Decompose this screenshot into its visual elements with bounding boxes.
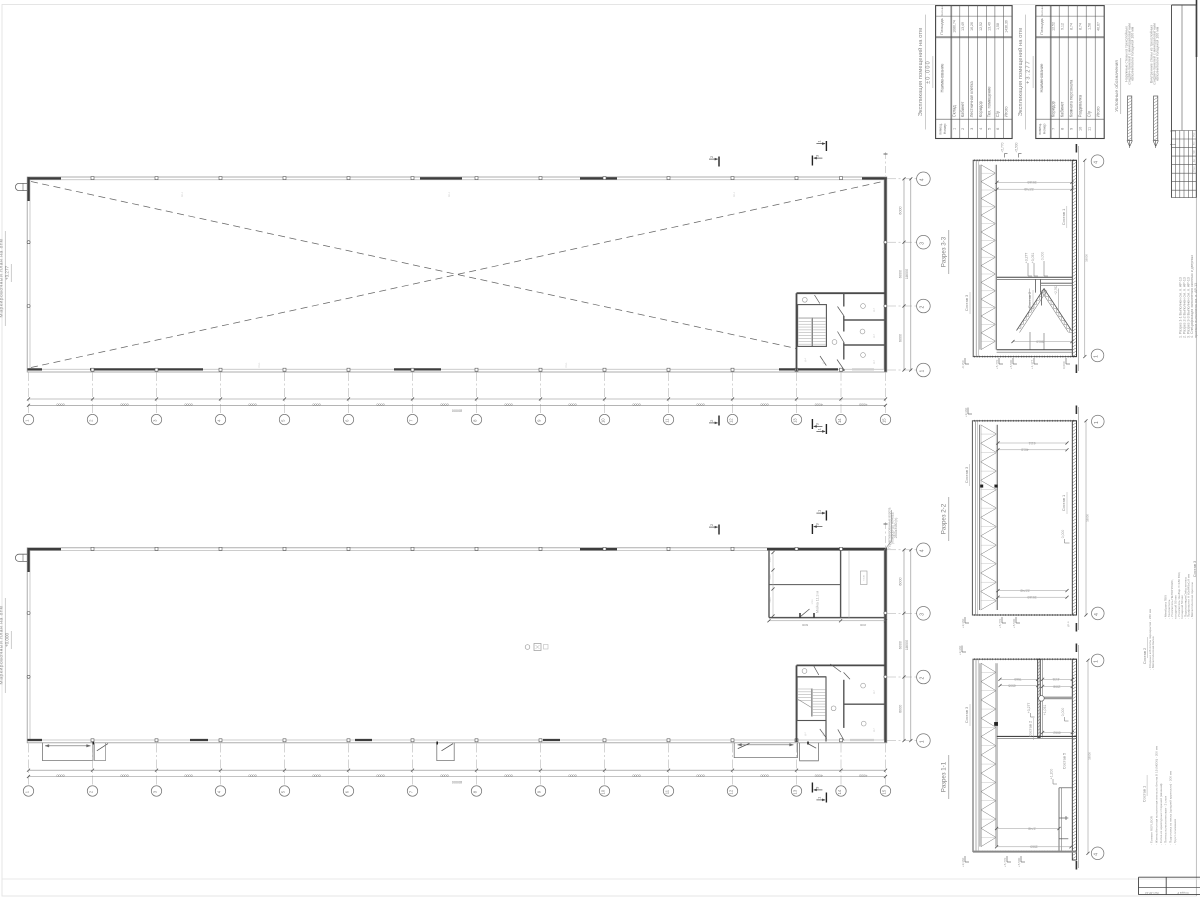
- svg-text:18000: 18000: [1088, 752, 1092, 760]
- svg-text:6062: 6062: [1053, 730, 1061, 734]
- svg-text:Подп: Подп: [1194, 167, 1196, 172]
- svg-text:+5,500: +5,500: [1017, 857, 1021, 867]
- svg-text:6000: 6000: [440, 774, 448, 778]
- svg-text:помещ.: помещ.: [938, 123, 942, 135]
- svg-text:+9,360: +9,360: [961, 618, 965, 628]
- svg-text:6000: 6000: [120, 774, 128, 778]
- svg-text:18000: 18000: [1086, 514, 1090, 522]
- svg-text:Разрез 2-2: Разрез 2-2: [941, 503, 948, 534]
- svg-text:Состав 3: Состав 3: [964, 706, 969, 723]
- svg-text:+9,360: +9,360: [958, 645, 962, 655]
- svg-text:+5,500: +5,500: [1015, 142, 1019, 152]
- svg-text:Стадия Р: Стадия Р: [1177, 891, 1189, 895]
- svg-text:35169: 35169: [1027, 595, 1036, 599]
- svg-text:6000: 6000: [312, 774, 320, 778]
- svg-text:- Металлическая балка: - Металлическая балка: [1151, 636, 1155, 670]
- svg-text:4: 4: [919, 178, 925, 181]
- svg-text:6000: 6000: [898, 206, 902, 214]
- svg-text:Площадь: Площадь: [940, 18, 944, 35]
- svg-text:12: 12: [729, 789, 734, 794]
- svg-text:+1,200: +1,200: [1049, 769, 1053, 780]
- svg-text:0,000: 0,000: [1061, 708, 1065, 717]
- svg-text:14: 14: [837, 418, 842, 423]
- svg-text:13: 13: [793, 789, 798, 794]
- svg-text:11: 11: [1088, 127, 1092, 131]
- svg-text:6000: 6000: [568, 402, 576, 406]
- svg-text:помещ.: помещ.: [1038, 123, 1042, 135]
- svg-text:+1,177: +1,177: [1030, 359, 1034, 369]
- svg-text:6000: 6000: [120, 402, 128, 406]
- svg-text:4: 4: [919, 549, 925, 552]
- svg-text:Состав 2: Состав 2: [1028, 720, 1033, 737]
- svg-text:6000: 6000: [184, 774, 192, 778]
- svg-text:Кабинет: Кабинет: [1060, 102, 1065, 118]
- svg-text:4618: 4618: [1021, 448, 1029, 452]
- svg-text:18000: 18000: [905, 640, 909, 650]
- svg-text:35169: 35169: [1027, 180, 1036, 184]
- svg-text:Тех. помещение: Тех. помещение: [987, 86, 992, 118]
- svg-text:Состав 1: Состав 1: [1061, 208, 1066, 225]
- svg-text:2500х3480 (h): 2500х3480 (h): [894, 518, 898, 539]
- svg-text:1: 1: [1094, 355, 1100, 358]
- svg-text:Разрез 3-3: Разрез 3-3: [941, 236, 948, 267]
- svg-text:80000: 80000: [452, 780, 462, 784]
- svg-text:2: 2: [961, 128, 965, 130]
- svg-text:С/у: С/у: [995, 110, 1000, 117]
- svg-text:4: 4: [1094, 613, 1100, 616]
- svg-text:1: 1: [1094, 421, 1100, 424]
- svg-text:12: 12: [729, 418, 734, 423]
- svg-text:6000: 6000: [376, 774, 384, 778]
- svg-text:6000: 6000: [312, 402, 320, 406]
- svg-text:13: 13: [793, 418, 798, 423]
- svg-text:6000: 6000: [898, 641, 902, 649]
- svg-text:- Пленка полиэтиленовая - 2 с: - Пленка полиэтиленовая - 2 слоя: [1164, 796, 1168, 845]
- svg-text:наполнителем толщиной 100 мм: наполнителем толщиной 100 мм: [1156, 26, 1160, 81]
- svg-text:-0,150: -0,150: [961, 360, 965, 369]
- svg-text:Лестничная клетка: Лестничная клетка: [969, 81, 974, 118]
- svg-text:6000: 6000: [760, 402, 768, 406]
- svg-text:1436,39: 1436,39: [1005, 20, 1009, 33]
- svg-text:2: 2: [919, 676, 925, 679]
- svg-text:16,26: 16,26: [970, 22, 974, 31]
- svg-text:1: 1: [919, 740, 925, 743]
- svg-text:4000: 4000: [859, 402, 867, 406]
- svg-text:9610: 9610: [1036, 339, 1044, 343]
- svg-text:Сп-1: Сп-1: [258, 362, 261, 368]
- svg-text:Состав 2: Состав 2: [1142, 647, 1147, 664]
- svg-text:- Грунт основания: - Грунт основания: [1173, 819, 1177, 845]
- svg-text:13,49: 13,49: [988, 22, 992, 31]
- svg-text:3: 3: [919, 613, 925, 616]
- svg-text:Состав 1: Состав 1: [1141, 785, 1146, 802]
- svg-text:6000: 6000: [898, 705, 902, 713]
- svg-text:Кол-во: Кол-во: [1040, 6, 1044, 16]
- svg-text:- Сетка из арматурных стержней: - Сетка из арматурных стержней (вязаная): [1159, 784, 1163, 845]
- svg-text:10: 10: [1079, 127, 1083, 131]
- svg-text:6000: 6000: [56, 402, 64, 406]
- svg-text:+3.277: +3.277: [1026, 60, 1032, 84]
- svg-text:±0.000: ±0.000: [926, 60, 932, 84]
- svg-text:6000: 6000: [898, 577, 902, 585]
- svg-text:6000: 6000: [504, 774, 512, 778]
- svg-text:Итого: Итого: [1004, 106, 1009, 117]
- svg-text:6000: 6000: [696, 774, 704, 778]
- svg-text:0,000: 0,000: [1061, 530, 1065, 539]
- svg-text:- Металлические прогоны: - Металлические прогоны: [1190, 581, 1194, 619]
- svg-text:5: 5: [988, 128, 992, 130]
- svg-text:6595: 6595: [1008, 684, 1016, 688]
- svg-text:Экспликация помещений на отм: Экспликация помещений на отм: [1017, 28, 1024, 116]
- svg-text:15: 15: [882, 418, 887, 423]
- svg-text:1,58: 1,58: [1088, 23, 1092, 30]
- svg-text:Лист АР-12: Лист АР-12: [1145, 891, 1159, 895]
- svg-text:1: 1: [919, 369, 925, 372]
- svg-text:Состав 3: Состав 3: [964, 294, 969, 311]
- svg-text:+5,770: +5,770: [1003, 857, 1007, 867]
- svg-text:6000: 6000: [248, 402, 256, 406]
- svg-text:Экспликация помещений на отм: Экспликация помещений на отм: [917, 28, 924, 116]
- svg-text:Итого: Итого: [1096, 106, 1101, 117]
- svg-text:+9,360: +9,360: [964, 407, 968, 417]
- svg-text:Наименование: Наименование: [939, 63, 944, 93]
- svg-text:Кол-во: Кол-во: [940, 6, 944, 16]
- svg-text:+0.000: +0.000: [5, 632, 10, 647]
- svg-text:10: 10: [601, 789, 606, 794]
- svg-text:+3,277: +3,277: [1025, 253, 1029, 264]
- svg-text:Номер: Номер: [943, 124, 947, 135]
- svg-text:3569: 3569: [1030, 845, 1038, 849]
- svg-text:12,52: 12,52: [979, 22, 983, 31]
- svg-text:18000: 18000: [1084, 254, 1088, 262]
- svg-text:1: 1: [952, 128, 956, 130]
- svg-text:- Железобетонная монолитная пл: - Железобетонная монолитная плита из бет…: [1154, 746, 1158, 845]
- svg-text:Склад: Склад: [951, 105, 956, 117]
- svg-text:40,67: 40,67: [1097, 22, 1101, 31]
- svg-text:1750: 1750: [770, 557, 772, 563]
- svg-text:Состав 1: Состав 1: [1061, 494, 1066, 511]
- svg-text:6000: 6000: [760, 774, 768, 778]
- svg-text:6000: 6000: [376, 402, 384, 406]
- svg-text:- Подготовка из песка (средней: - Подготовка из песка (средней крупности…: [1168, 771, 1172, 845]
- svg-text:Сп-1: Сп-1: [448, 191, 451, 197]
- svg-text:4131: 4131: [1052, 677, 1060, 681]
- svg-text:22748: 22748: [1020, 589, 1029, 593]
- svg-text:+9,360: +9,360: [961, 857, 965, 867]
- svg-text:2850: 2850: [770, 597, 772, 603]
- svg-text:Мойка 11,3 м: Мойка 11,3 м: [816, 591, 820, 613]
- svg-text:Сп-1: Сп-1: [565, 362, 568, 368]
- svg-text:4: 4: [1094, 161, 1100, 164]
- svg-text:+1,051: +1,051: [1043, 705, 1047, 716]
- svg-text:2748: 2748: [1028, 826, 1036, 830]
- svg-text:ур.з.: ур.з.: [1066, 621, 1070, 627]
- svg-text:+5,770: +5,770: [995, 359, 999, 369]
- svg-text:Сп-1: Сп-1: [181, 191, 184, 197]
- svg-text:1080,74: 1080,74: [952, 20, 956, 33]
- svg-text:15: 15: [882, 789, 887, 794]
- svg-text:наполнителем толщиной 100 мм: наполнителем толщиной 100 мм: [1131, 26, 1135, 81]
- svg-text:8,74: 8,74: [1079, 23, 1083, 30]
- svg-text:6000: 6000: [440, 402, 448, 406]
- svg-text:1,58: 1,58: [996, 23, 1000, 30]
- svg-text:8,74: 8,74: [1070, 23, 1074, 30]
- svg-text:Состав 5: Состав 5: [1062, 752, 1067, 769]
- svg-text:10: 10: [601, 418, 606, 423]
- svg-text:6000: 6000: [184, 402, 192, 406]
- svg-text:9: 9: [1070, 128, 1074, 130]
- svg-text:6111: 6111: [1028, 441, 1035, 445]
- svg-text:13,49: 13,49: [961, 22, 965, 31]
- svg-text:4500: 4500: [859, 623, 866, 627]
- svg-text:Площадь: Площадь: [1040, 18, 1044, 35]
- svg-text:Коридор: Коридор: [978, 100, 983, 117]
- svg-text:0,000: 0,000: [1062, 361, 1066, 369]
- svg-text:Комната персонала: Комната персонала: [1069, 79, 1074, 117]
- svg-text:Кабинет: Кабинет: [960, 102, 965, 118]
- svg-text:+5,770: +5,770: [1001, 142, 1005, 152]
- svg-text:1750: 1750: [812, 599, 814, 605]
- svg-text:22748: 22748: [1024, 187, 1033, 191]
- svg-text:+5,500: +5,500: [1012, 618, 1016, 628]
- svg-text:+3,277: +3,277: [1027, 703, 1031, 714]
- svg-text:6000: 6000: [898, 334, 902, 342]
- svg-text:4: 4: [979, 128, 983, 130]
- svg-text:1: 1: [1094, 660, 1100, 663]
- svg-text:12,52: 12,52: [1052, 22, 1056, 31]
- svg-text:4000: 4000: [815, 774, 823, 778]
- svg-text:18000: 18000: [905, 269, 909, 279]
- svg-text:1508: 1508: [1053, 684, 1061, 688]
- svg-text:3: 3: [970, 128, 974, 130]
- svg-text:9,12: 9,12: [1061, 23, 1065, 30]
- svg-text:Т3.30: Т3.30: [864, 574, 866, 580]
- svg-text:4000: 4000: [815, 402, 823, 406]
- svg-text:2000: 2000: [770, 574, 772, 580]
- svg-text:0,000: 0,000: [1041, 252, 1045, 261]
- svg-text:+5,770: +5,770: [998, 618, 1002, 628]
- svg-text:Наименование: Наименование: [1039, 63, 1044, 93]
- svg-text:Условные обозначения: Условные обозначения: [1114, 60, 1120, 112]
- svg-text:Состав 3: Состав 3: [1192, 560, 1197, 577]
- svg-text:+3,051: +3,051: [1031, 253, 1035, 264]
- svg-text:проемов выполнена см. л. АР-13: проемов выполнена см. л. АР-13: [1194, 283, 1198, 338]
- svg-text:Раздевалка: Раздевалка: [1078, 94, 1083, 117]
- svg-text:11: 11: [665, 418, 670, 423]
- svg-text:Док: Док: [1194, 159, 1196, 162]
- svg-text:6: 6: [996, 128, 1000, 130]
- svg-text:Разрез 1-1: Разрез 1-1: [941, 761, 948, 792]
- svg-text:+3.277: +3.277: [5, 265, 10, 280]
- svg-text:3: 3: [919, 242, 925, 245]
- svg-text:- Топпинг REFLOOR: - Топпинг REFLOOR: [1150, 815, 1154, 845]
- svg-text:4000: 4000: [859, 774, 867, 778]
- svg-text:6000: 6000: [568, 774, 576, 778]
- svg-text:14: 14: [837, 789, 842, 794]
- svg-text:Состав 3: Состав 3: [964, 466, 969, 483]
- svg-text:6000: 6000: [504, 402, 512, 406]
- svg-text:Сп-1: Сп-1: [733, 191, 736, 197]
- svg-text:6000: 6000: [898, 270, 902, 278]
- svg-text:8: 8: [1061, 128, 1065, 130]
- svg-text:+2,762: +2,762: [1054, 285, 1058, 295]
- svg-text:4: 4: [1094, 853, 1100, 856]
- svg-text:6000: 6000: [632, 774, 640, 778]
- svg-text:Коридор: Коридор: [1051, 100, 1056, 117]
- svg-text:80000: 80000: [452, 409, 462, 413]
- svg-text:2: 2: [919, 305, 925, 308]
- svg-text:Лист: Лист: [1194, 150, 1196, 154]
- svg-text:+5,500: +5,500: [1009, 359, 1013, 369]
- svg-text:7: 7: [1052, 128, 1056, 130]
- svg-text:6000: 6000: [632, 402, 640, 406]
- svg-text:6000: 6000: [248, 774, 256, 778]
- svg-text:7560: 7560: [1014, 677, 1022, 681]
- svg-text:Состав 2: Состав 2: [1027, 291, 1032, 308]
- svg-text:С/у: С/у: [1087, 110, 1092, 117]
- svg-text:6000: 6000: [696, 402, 704, 406]
- svg-text:Изм: Изм: [1194, 132, 1196, 136]
- svg-text:11: 11: [665, 789, 670, 794]
- svg-text:Номер: Номер: [1043, 124, 1047, 135]
- svg-text:6000: 6000: [56, 774, 64, 778]
- svg-text:6000: 6000: [801, 623, 808, 627]
